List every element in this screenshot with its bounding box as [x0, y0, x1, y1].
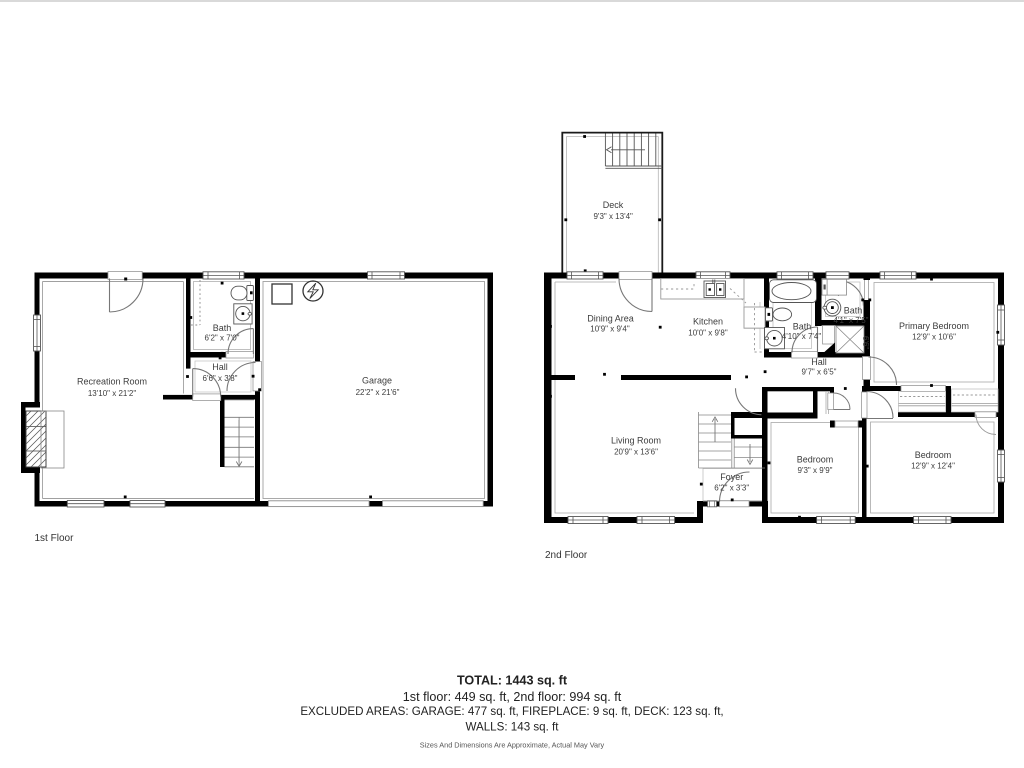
svg-text:4'10" x 7'4": 4'10" x 7'4": [782, 332, 822, 341]
svg-text:1st Floor: 1st Floor: [35, 533, 75, 544]
svg-text:Dining Area: Dining Area: [587, 314, 634, 324]
svg-text:Hall: Hall: [212, 362, 228, 372]
svg-text:WALLS: 143 sq. ft: WALLS: 143 sq. ft: [465, 721, 559, 734]
svg-text:2nd Floor: 2nd Floor: [545, 550, 588, 561]
svg-text:4'1" x 7'5": 4'1" x 7'5": [834, 316, 869, 325]
svg-text:6'2" x 7'0": 6'2" x 7'0": [205, 334, 240, 343]
svg-text:Bedroom: Bedroom: [915, 450, 952, 460]
svg-text:Recreation Room: Recreation Room: [77, 377, 147, 387]
svg-text:Living Room: Living Room: [611, 436, 661, 446]
svg-text:Garage: Garage: [362, 376, 392, 386]
svg-text:12'9" x 10'6": 12'9" x 10'6": [912, 333, 956, 342]
svg-text:10'9" x 9'4": 10'9" x 9'4": [590, 324, 630, 333]
svg-text:Bedroom: Bedroom: [797, 455, 834, 465]
svg-text:Foyer: Foyer: [720, 472, 743, 482]
svg-text:Bath: Bath: [213, 323, 232, 333]
svg-text:Kitchen: Kitchen: [693, 317, 723, 327]
svg-text:9'3" x 13'4": 9'3" x 13'4": [593, 212, 633, 221]
svg-text:6'6": 6'6": [861, 336, 870, 349]
svg-text:Deck: Deck: [603, 200, 624, 210]
svg-text:Primary Bedroom: Primary Bedroom: [899, 321, 969, 331]
svg-text:10'0" x 9'8": 10'0" x 9'8": [688, 328, 728, 337]
svg-text:Bath: Bath: [793, 322, 812, 332]
svg-text:6'2" x 3'3": 6'2" x 3'3": [714, 483, 749, 492]
svg-text:12'9" x 12'4": 12'9" x 12'4": [911, 462, 955, 471]
svg-text:13'10" x 21'2": 13'10" x 21'2": [88, 389, 136, 398]
svg-text:6'6" x 3'8": 6'6" x 3'8": [203, 374, 238, 383]
svg-text:EXCLUDED AREAS: GARAGE: 477 sq: EXCLUDED AREAS: GARAGE: 477 sq. ft, FIRE…: [300, 705, 723, 718]
svg-text:Bath: Bath: [844, 306, 863, 316]
svg-text:Hall: Hall: [811, 357, 827, 367]
svg-text:20'9" x 13'6": 20'9" x 13'6": [614, 448, 658, 457]
svg-text:1st floor: 449 sq. ft, 2nd flo: 1st floor: 449 sq. ft, 2nd floor: 994 sq…: [403, 690, 622, 704]
svg-text:9'7" x 6'5": 9'7" x 6'5": [802, 368, 837, 377]
svg-text:TOTAL: 1443 sq. ft: TOTAL: 1443 sq. ft: [457, 674, 568, 688]
svg-text:9'3" x 9'9": 9'3" x 9'9": [798, 466, 833, 475]
svg-text:Sizes And Dimensions Are Appro: Sizes And Dimensions Are Approximate, Ac…: [420, 741, 605, 750]
svg-text:22'2" x 21'6": 22'2" x 21'6": [356, 388, 400, 397]
